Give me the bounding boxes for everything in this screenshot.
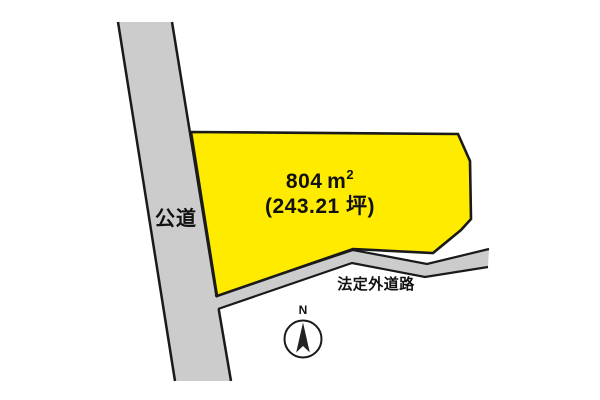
parcel-area-tsubo: (243.21 坪) [220,194,420,219]
land-plot-diagram: 804 m2 (243.21 坪) 公道 法定外道路 N [0,0,600,400]
area-unit: m2 [327,170,354,193]
parcel-area-label: 804 m2 (243.21 坪) [220,169,420,219]
parcel-area-sqm: 804 m2 [220,169,420,194]
area-unit-exponent: 2 [346,167,354,182]
legal-outside-road-label: 法定外道路 [333,273,419,294]
compass [285,321,322,358]
area-value: 804 [286,170,323,193]
public-road-label: 公道 [155,202,197,231]
compass-north-label: N [293,303,313,317]
